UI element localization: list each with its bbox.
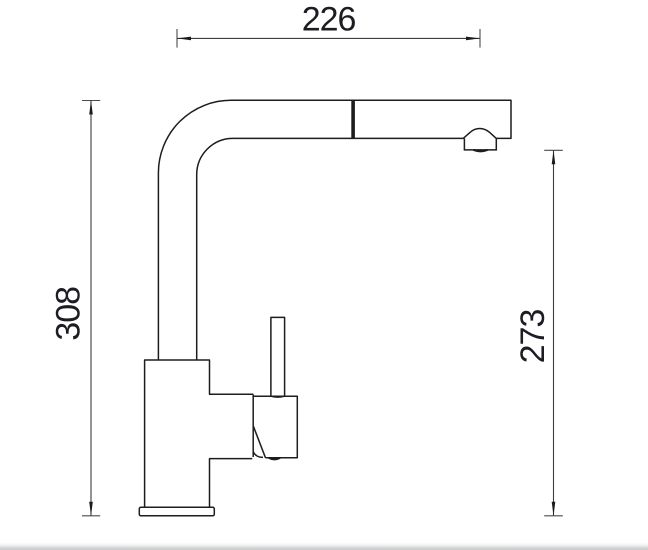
svg-text:273: 273	[514, 310, 552, 364]
svg-text:226: 226	[302, 0, 356, 38]
svg-text:308: 308	[50, 287, 88, 341]
